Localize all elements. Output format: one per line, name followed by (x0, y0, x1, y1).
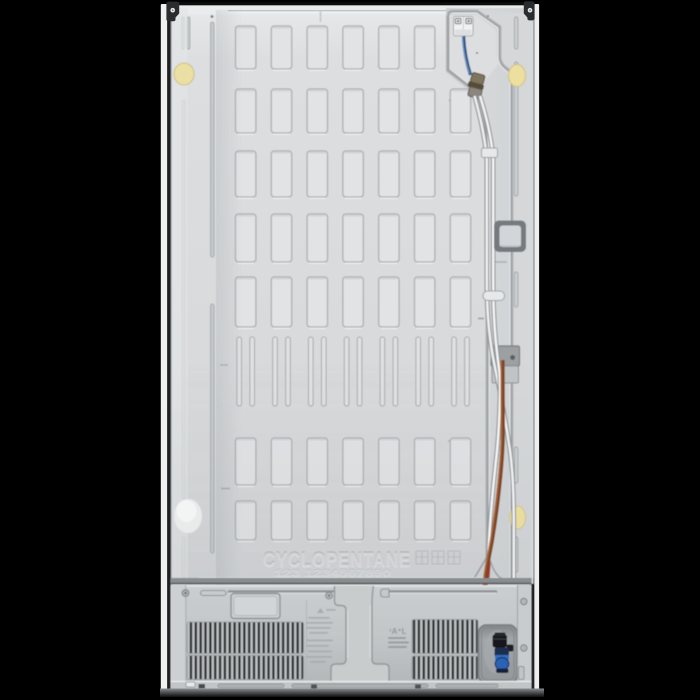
svg-text:¹A⁺L: ¹A⁺L (389, 627, 407, 636)
svg-text:123 1234567890: 123 1234567890 (274, 568, 391, 578)
